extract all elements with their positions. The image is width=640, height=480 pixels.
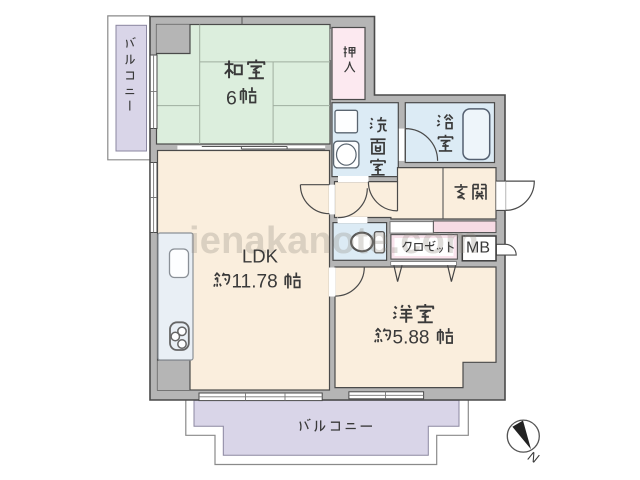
svg-text:LDK: LDK — [242, 245, 279, 266]
svg-text:6: 6 — [226, 88, 237, 110]
svg-text:MB: MB — [466, 240, 490, 257]
svg-text:11.78: 11.78 — [232, 272, 278, 293]
svg-text:ienakanote.com: ienakanote.com — [189, 220, 479, 262]
svg-text:5.88: 5.88 — [393, 327, 430, 348]
